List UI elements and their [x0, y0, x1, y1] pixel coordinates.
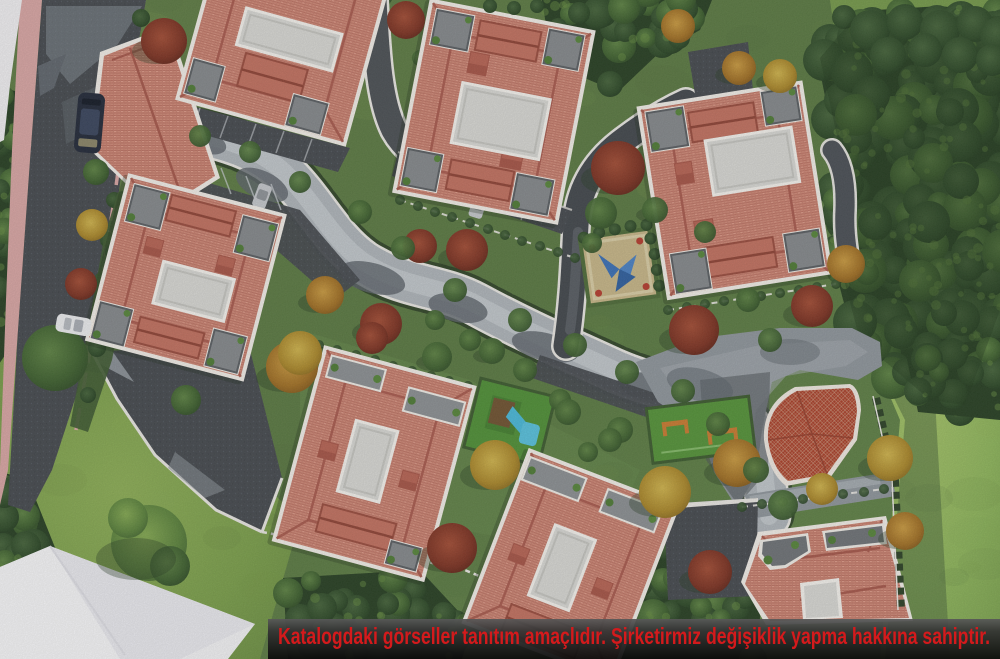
svg-text:Katalogdaki görseller tanıtım: Katalogdaki görseller tanıtım amaçlıdır.…	[278, 623, 990, 649]
